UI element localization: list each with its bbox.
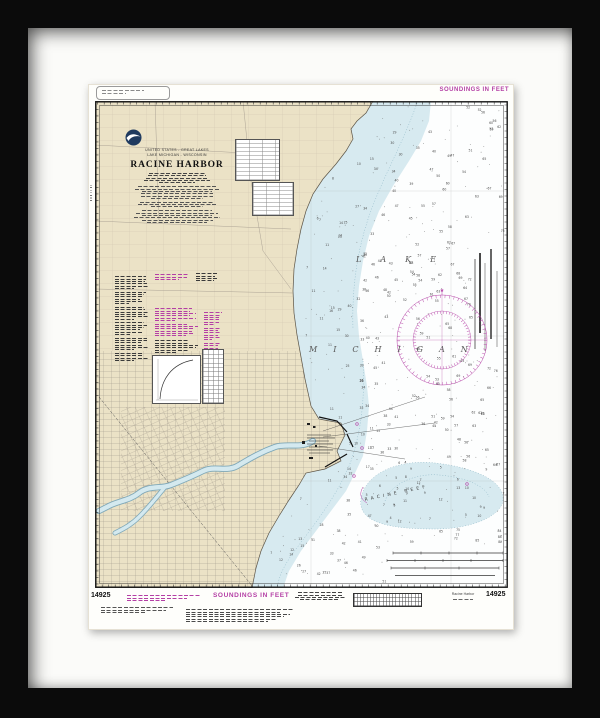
svg-text:4: 4	[390, 516, 392, 520]
chart-paper: SOUNDINGS IN FEET	[88, 84, 514, 630]
text-line	[186, 619, 276, 620]
svg-text:67: 67	[451, 263, 455, 267]
text-line	[149, 173, 205, 174]
svg-text:53: 53	[376, 545, 380, 549]
svg-text:57: 57	[432, 202, 436, 206]
svg-text:54: 54	[462, 170, 466, 174]
svg-text:40: 40	[432, 150, 436, 154]
svg-text:8: 8	[405, 475, 407, 479]
svg-text:10: 10	[361, 433, 365, 437]
text-line	[115, 347, 149, 348]
svg-text:75: 75	[501, 229, 505, 233]
svg-text:15: 15	[376, 429, 380, 433]
svg-text:68: 68	[448, 326, 452, 330]
text-line	[115, 338, 147, 339]
svg-text:7: 7	[270, 551, 272, 555]
svg-text:34: 34	[365, 404, 369, 408]
text-line	[155, 345, 198, 346]
svg-text:58: 58	[447, 388, 451, 392]
text-line	[155, 318, 196, 319]
text-line	[115, 281, 145, 282]
svg-text:50: 50	[436, 174, 440, 178]
text-line	[115, 332, 142, 333]
svg-text:7: 7	[305, 333, 307, 337]
general-notes	[125, 186, 229, 207]
svg-text:49: 49	[378, 259, 382, 263]
picture-mat: SOUNDINGS IN FEET	[28, 28, 572, 688]
text-line	[151, 206, 203, 207]
notes-column	[115, 275, 149, 362]
svg-text:35: 35	[374, 382, 378, 386]
text-line	[101, 607, 173, 608]
caution-heading	[155, 273, 192, 281]
text-line	[300, 599, 339, 600]
text-line	[186, 612, 280, 613]
svg-text:39: 39	[360, 363, 364, 367]
text-line	[115, 329, 140, 330]
svg-text:60: 60	[442, 187, 446, 191]
svg-text:56: 56	[464, 440, 468, 444]
svg-text:36: 36	[360, 319, 364, 323]
text-line	[155, 308, 192, 309]
compass-north-star-icon: ★	[440, 288, 445, 294]
text-line	[155, 335, 186, 336]
text-line	[115, 292, 146, 293]
small-title-subline	[447, 598, 479, 602]
soundings-note-bottom: SOUNDINGS IN FEET	[213, 592, 289, 599]
svg-text:70: 70	[467, 303, 471, 307]
svg-text:77: 77	[455, 533, 459, 537]
svg-text:41: 41	[382, 361, 386, 365]
svg-text:37: 37	[337, 559, 341, 563]
svg-text:15: 15	[370, 157, 374, 161]
svg-text:52: 52	[403, 298, 407, 302]
text-line	[115, 327, 144, 328]
text-line	[186, 621, 268, 622]
svg-text:7: 7	[300, 497, 302, 501]
svg-text:30: 30	[390, 141, 394, 145]
plotting-stamp	[96, 86, 170, 100]
svg-text:9: 9	[393, 503, 395, 507]
text-line	[295, 597, 346, 598]
svg-text:12: 12	[398, 520, 402, 524]
scale-notes	[125, 173, 229, 183]
text-line	[196, 280, 214, 281]
svg-text:67: 67	[488, 186, 492, 190]
svg-text:46: 46	[344, 561, 348, 565]
svg-text:75: 75	[456, 528, 460, 532]
svg-text:7: 7	[429, 517, 431, 521]
margin-note	[90, 185, 92, 201]
svg-text:14: 14	[323, 266, 327, 270]
svg-text:31: 31	[311, 538, 315, 542]
svg-text:5: 5	[465, 513, 467, 517]
svg-text:11: 11	[328, 479, 332, 483]
svg-text:48: 48	[457, 437, 461, 441]
svg-text:11: 11	[328, 343, 332, 347]
text-line	[115, 303, 129, 304]
stamp-text-lines	[102, 90, 164, 93]
svg-text:9: 9	[485, 468, 487, 472]
svg-text:13: 13	[456, 486, 460, 490]
text-line	[115, 294, 144, 295]
svg-text:56: 56	[493, 119, 497, 123]
svg-text:89: 89	[498, 540, 502, 544]
text-line	[204, 319, 219, 320]
text-line	[155, 279, 179, 280]
text-line	[136, 213, 218, 214]
svg-text:56: 56	[416, 395, 420, 399]
text-line	[155, 333, 193, 334]
svg-text:51: 51	[469, 149, 473, 153]
text-line	[204, 317, 219, 318]
svg-text:28: 28	[360, 379, 364, 383]
text-line	[155, 320, 175, 321]
svg-text:57: 57	[454, 424, 458, 428]
svg-text:66: 66	[487, 386, 491, 390]
text-line	[142, 191, 212, 192]
svg-text:11: 11	[403, 499, 407, 503]
svg-text:43: 43	[384, 315, 388, 319]
text-line	[196, 276, 215, 277]
svg-text:59: 59	[431, 278, 435, 282]
svg-text:38: 38	[362, 288, 366, 292]
svg-text:27: 27	[355, 205, 359, 209]
svg-text:10: 10	[357, 162, 361, 166]
svg-text:62: 62	[438, 273, 442, 277]
svg-text:11: 11	[338, 416, 342, 420]
svg-text:5: 5	[440, 465, 442, 469]
svg-text:59: 59	[441, 416, 445, 420]
svg-text:55: 55	[439, 230, 443, 234]
svg-text:54: 54	[410, 270, 414, 274]
svg-text:34: 34	[361, 386, 365, 390]
svg-text:15: 15	[300, 544, 304, 548]
svg-text:27: 27	[302, 569, 306, 573]
svg-text:46: 46	[371, 263, 375, 267]
svg-text:33: 33	[370, 232, 374, 236]
svg-text:46: 46	[375, 276, 379, 280]
svg-text:33: 33	[360, 337, 364, 341]
svg-text:41: 41	[358, 540, 362, 544]
svg-text:56: 56	[481, 111, 485, 115]
svg-text:38: 38	[337, 529, 341, 533]
svg-text:14: 14	[289, 552, 293, 556]
svg-text:5: 5	[366, 493, 368, 497]
text-line	[115, 358, 148, 359]
svg-text:45: 45	[394, 278, 398, 282]
text-line	[186, 616, 284, 617]
text-line	[204, 332, 221, 333]
svg-text:36: 36	[421, 422, 425, 426]
svg-text:15: 15	[338, 235, 342, 239]
text-line	[141, 196, 213, 197]
text-line	[155, 313, 196, 314]
svg-text:10: 10	[465, 486, 469, 490]
svg-text:62: 62	[497, 125, 501, 129]
projection-note	[292, 591, 348, 602]
text-line	[115, 307, 144, 308]
title-block: UNITED STATES - GREAT LAKES LAKE MICHIGA…	[125, 129, 229, 226]
svg-text:50: 50	[375, 524, 379, 528]
svg-text:45: 45	[409, 217, 413, 221]
text-line	[148, 175, 206, 176]
text-line	[115, 345, 143, 346]
text-line	[155, 343, 188, 344]
text-line	[155, 328, 195, 329]
text-line	[204, 339, 212, 340]
svg-text:6: 6	[457, 477, 459, 481]
svg-text:35: 35	[360, 406, 364, 410]
svg-text:71: 71	[481, 412, 485, 416]
svg-text:43: 43	[389, 262, 393, 266]
svg-text:63: 63	[472, 424, 476, 428]
svg-text:40: 40	[392, 189, 396, 193]
svg-text:56: 56	[449, 398, 453, 402]
svg-text:25: 25	[346, 364, 350, 368]
svg-text:72: 72	[468, 278, 472, 282]
svg-text:65: 65	[469, 316, 473, 320]
svg-text:10: 10	[477, 514, 481, 518]
svg-text:51: 51	[431, 414, 435, 418]
svg-text:48: 48	[416, 347, 420, 351]
svg-text:35: 35	[347, 512, 351, 516]
svg-text:43: 43	[428, 130, 432, 134]
svg-text:9: 9	[406, 491, 408, 495]
text-line	[204, 337, 220, 338]
svg-text:49: 49	[362, 556, 366, 560]
facilities-table	[252, 182, 294, 216]
svg-text:51: 51	[382, 580, 386, 584]
text-line	[155, 340, 189, 341]
text-line	[147, 222, 206, 223]
svg-text:64: 64	[493, 463, 497, 467]
text-line	[155, 274, 189, 275]
svg-text:63: 63	[465, 215, 469, 219]
svg-text:7: 7	[383, 503, 385, 507]
svg-text:15: 15	[336, 328, 340, 332]
chart-title: RACINE HARBOR	[125, 160, 229, 170]
svg-text:42: 42	[317, 572, 321, 576]
wharves-table	[235, 139, 280, 181]
text-line	[140, 202, 213, 203]
magenta-note-column	[204, 311, 222, 352]
svg-text:33: 33	[330, 552, 334, 556]
svg-text:67: 67	[451, 242, 455, 246]
text-line	[141, 193, 214, 194]
svg-text:69: 69	[456, 374, 460, 378]
soundings-note-top: SOUNDINGS IN FEET	[439, 87, 509, 93]
svg-text:42: 42	[363, 278, 367, 282]
text-line	[186, 614, 290, 615]
text-line	[151, 198, 203, 199]
svg-text:63: 63	[436, 290, 440, 294]
text-line	[115, 342, 141, 343]
text-line	[298, 595, 341, 596]
text-line	[453, 599, 472, 600]
text-line	[155, 352, 176, 353]
svg-text:84: 84	[498, 529, 502, 533]
svg-text:63: 63	[475, 195, 479, 199]
svg-text:67: 67	[464, 297, 468, 301]
svg-text:12: 12	[279, 558, 283, 562]
text-line	[115, 301, 142, 302]
svg-text:54: 54	[426, 374, 430, 378]
text-line	[186, 609, 293, 610]
text-line	[134, 217, 220, 218]
text-line	[204, 343, 220, 344]
svg-text:10: 10	[472, 496, 476, 500]
text-line	[155, 350, 188, 351]
svg-text:37: 37	[326, 571, 330, 575]
magenta-margin-note	[127, 594, 207, 602]
text-line	[115, 286, 148, 287]
region-line-2: LAKE MICHIGAN - WISCONSIN	[125, 153, 229, 158]
svg-text:54: 54	[450, 415, 454, 419]
text-line	[115, 349, 134, 350]
text-line	[204, 312, 222, 313]
text-line	[115, 283, 147, 284]
text-line	[138, 186, 216, 187]
svg-text:53: 53	[435, 377, 439, 381]
text-line	[115, 325, 147, 326]
svg-text:5: 5	[349, 441, 351, 445]
svg-text:41: 41	[362, 254, 366, 258]
text-line	[115, 319, 134, 320]
svg-text:60: 60	[446, 182, 450, 186]
svg-text:60: 60	[436, 382, 440, 386]
text-line	[115, 360, 134, 361]
text-line	[142, 210, 212, 211]
svg-text:47: 47	[430, 168, 434, 172]
svg-text:65: 65	[445, 322, 449, 326]
svg-text:39: 39	[409, 182, 413, 186]
svg-text:29: 29	[393, 130, 397, 134]
svg-text:41: 41	[394, 415, 398, 419]
svg-text:9: 9	[386, 520, 388, 524]
svg-text:59: 59	[410, 540, 414, 544]
svg-text:38: 38	[383, 414, 387, 418]
text-line	[204, 335, 218, 336]
svg-text:55: 55	[421, 204, 425, 208]
authority-notes	[125, 210, 229, 223]
text-line	[204, 315, 220, 316]
chart-number-right: 14925	[486, 591, 505, 598]
svg-text:4: 4	[404, 460, 406, 464]
text-line	[115, 353, 142, 354]
svg-text:40: 40	[348, 304, 352, 308]
correction-record-grid	[353, 593, 422, 607]
svg-text:49: 49	[447, 154, 451, 158]
svg-text:57: 57	[489, 127, 493, 131]
text-line	[115, 288, 134, 289]
svg-text:14: 14	[347, 467, 351, 471]
text-line	[142, 215, 213, 216]
svg-text:42: 42	[342, 541, 346, 545]
svg-text:58: 58	[448, 225, 452, 229]
text-line	[101, 612, 146, 613]
svg-text:25: 25	[344, 220, 348, 224]
text-line	[204, 324, 215, 325]
svg-text:54: 54	[418, 279, 422, 283]
svg-text:65: 65	[485, 448, 489, 452]
text-line	[155, 331, 192, 332]
text-line	[115, 279, 146, 280]
text-line	[138, 204, 217, 205]
svg-text:11: 11	[312, 289, 316, 293]
svg-text:57: 57	[446, 247, 450, 251]
text-line	[115, 299, 140, 300]
svg-text:85: 85	[475, 539, 479, 543]
svg-text:62: 62	[472, 410, 476, 414]
svg-text:14: 14	[339, 221, 343, 225]
svg-text:69: 69	[468, 363, 472, 367]
svg-text:7: 7	[306, 265, 308, 269]
text-line	[135, 189, 218, 190]
text-line	[204, 322, 219, 323]
text-line	[115, 312, 149, 313]
text-line	[204, 345, 218, 346]
svg-text:30: 30	[399, 152, 403, 156]
svg-text:35: 35	[370, 467, 374, 471]
svg-text:44: 44	[389, 407, 393, 411]
svg-text:11: 11	[325, 243, 329, 247]
lake-label: LAKE	[355, 255, 455, 264]
text-line	[155, 277, 187, 278]
text-line	[102, 90, 144, 91]
text-line	[115, 314, 145, 315]
svg-text:50: 50	[445, 428, 449, 432]
text-line	[115, 316, 149, 317]
svg-text:13: 13	[298, 537, 302, 541]
svg-text:46: 46	[353, 569, 357, 573]
svg-text:32: 32	[349, 472, 353, 476]
text-line	[204, 330, 218, 331]
svg-text:61: 61	[430, 292, 434, 296]
svg-text:65: 65	[439, 529, 443, 533]
svg-text:34: 34	[363, 207, 367, 211]
svg-text:12: 12	[290, 548, 294, 552]
svg-text:34: 34	[343, 475, 347, 479]
text-line	[115, 322, 144, 323]
svg-text:72: 72	[454, 537, 458, 541]
svg-text:8: 8	[332, 176, 334, 180]
text-line	[196, 278, 218, 279]
tide-table	[202, 349, 224, 404]
svg-text:11: 11	[330, 407, 334, 411]
svg-text:52: 52	[415, 243, 419, 247]
text-line	[155, 347, 196, 348]
chart-map: ★ LAKE MICHIGAN RACINE REEF 577251706375…	[95, 101, 508, 588]
text-line	[146, 178, 208, 179]
svg-text:49: 49	[447, 455, 451, 459]
text-line	[155, 311, 190, 312]
text-line	[142, 220, 213, 221]
fine-print-paragraph	[186, 608, 300, 625]
text-line	[102, 93, 126, 94]
text-line	[115, 296, 143, 297]
svg-text:12: 12	[439, 498, 443, 502]
chart-number-left: 14925	[91, 592, 110, 599]
svg-text:42: 42	[387, 290, 391, 294]
svg-text:52: 52	[412, 394, 416, 398]
svg-text:32: 32	[356, 297, 360, 301]
svg-text:55: 55	[437, 356, 441, 360]
svg-text:5: 5	[397, 486, 399, 490]
svg-text:7: 7	[420, 478, 422, 482]
svg-text:29: 29	[338, 307, 342, 311]
svg-text:58: 58	[416, 274, 420, 278]
